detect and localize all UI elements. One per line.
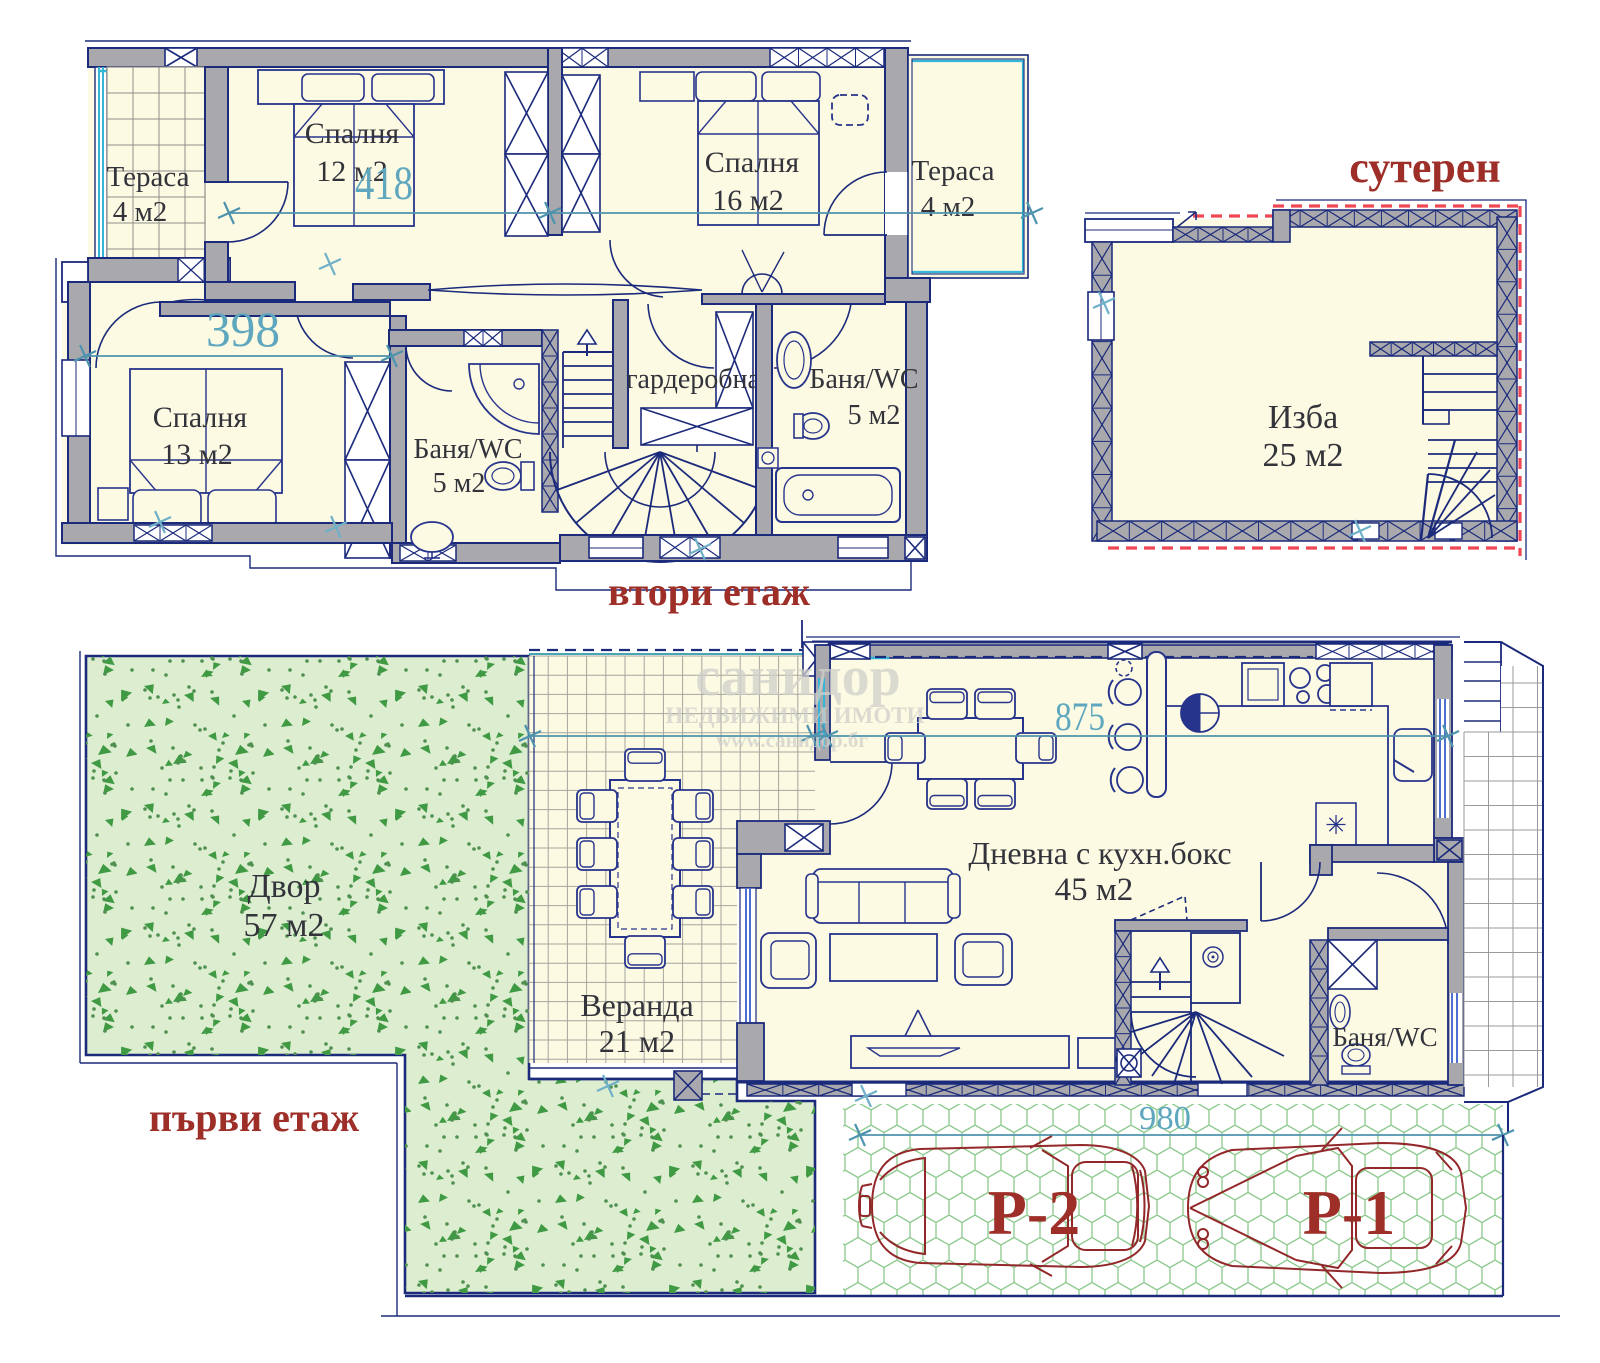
svg-text:втори етаж: втори етаж xyxy=(608,569,810,614)
svg-text:5 м2: 5 м2 xyxy=(848,400,901,431)
svg-text:Тераса: Тераса xyxy=(107,161,190,193)
svg-text:Веранда: Веранда xyxy=(580,987,693,1023)
svg-text:13 м2: 13 м2 xyxy=(161,438,232,471)
svg-text:398: 398 xyxy=(206,301,280,357)
svg-text:Двор: Двор xyxy=(247,868,320,905)
svg-text:5 м2: 5 м2 xyxy=(433,468,486,499)
svg-text:Спалня: Спалня xyxy=(153,401,248,434)
svg-text:Изба: Изба xyxy=(1268,399,1338,436)
svg-text:4 м2: 4 м2 xyxy=(921,191,976,223)
svg-text:сутерен: сутерен xyxy=(1349,143,1500,192)
svg-text:Дневна с кухн.бокс: Дневна с кухн.бокс xyxy=(968,835,1231,871)
svg-text:4 м2: 4 м2 xyxy=(113,196,168,228)
svg-text:980: 980 xyxy=(1139,1100,1191,1137)
svg-text:Спалня: Спалня xyxy=(705,146,800,179)
svg-text:418: 418 xyxy=(355,157,413,210)
svg-text:57 м2: 57 м2 xyxy=(243,907,324,944)
svg-text:санидор: санидор xyxy=(695,646,901,708)
svg-text:P-2: P-2 xyxy=(988,1177,1080,1248)
svg-text:875: 875 xyxy=(1055,694,1105,739)
svg-text:Баня/WC: Баня/WC xyxy=(413,434,522,465)
svg-text:P-1: P-1 xyxy=(1303,1177,1395,1248)
svg-text:45 м2: 45 м2 xyxy=(1055,872,1134,908)
svg-text:НЕДВИЖИМИ ИМОТИ: НЕДВИЖИМИ ИМОТИ xyxy=(666,703,925,728)
svg-text:www.санидор.бг: www.санидор.бг xyxy=(716,728,868,752)
svg-text:21 м2: 21 м2 xyxy=(599,1023,675,1059)
svg-text:25 м2: 25 м2 xyxy=(1262,437,1343,474)
svg-text:първи етаж: първи етаж xyxy=(149,1095,359,1140)
svg-text:16 м2: 16 м2 xyxy=(712,184,783,217)
svg-text:✳: ✳ xyxy=(1325,811,1347,840)
svg-text:Спалня: Спалня xyxy=(305,117,400,150)
svg-text:Баня/WC: Баня/WC xyxy=(809,364,918,395)
svg-text:Баня/WC: Баня/WC xyxy=(1332,1022,1437,1052)
svg-text:Тераса: Тераса xyxy=(912,155,995,187)
svg-text:гардеробна: гардеробна xyxy=(626,364,760,395)
